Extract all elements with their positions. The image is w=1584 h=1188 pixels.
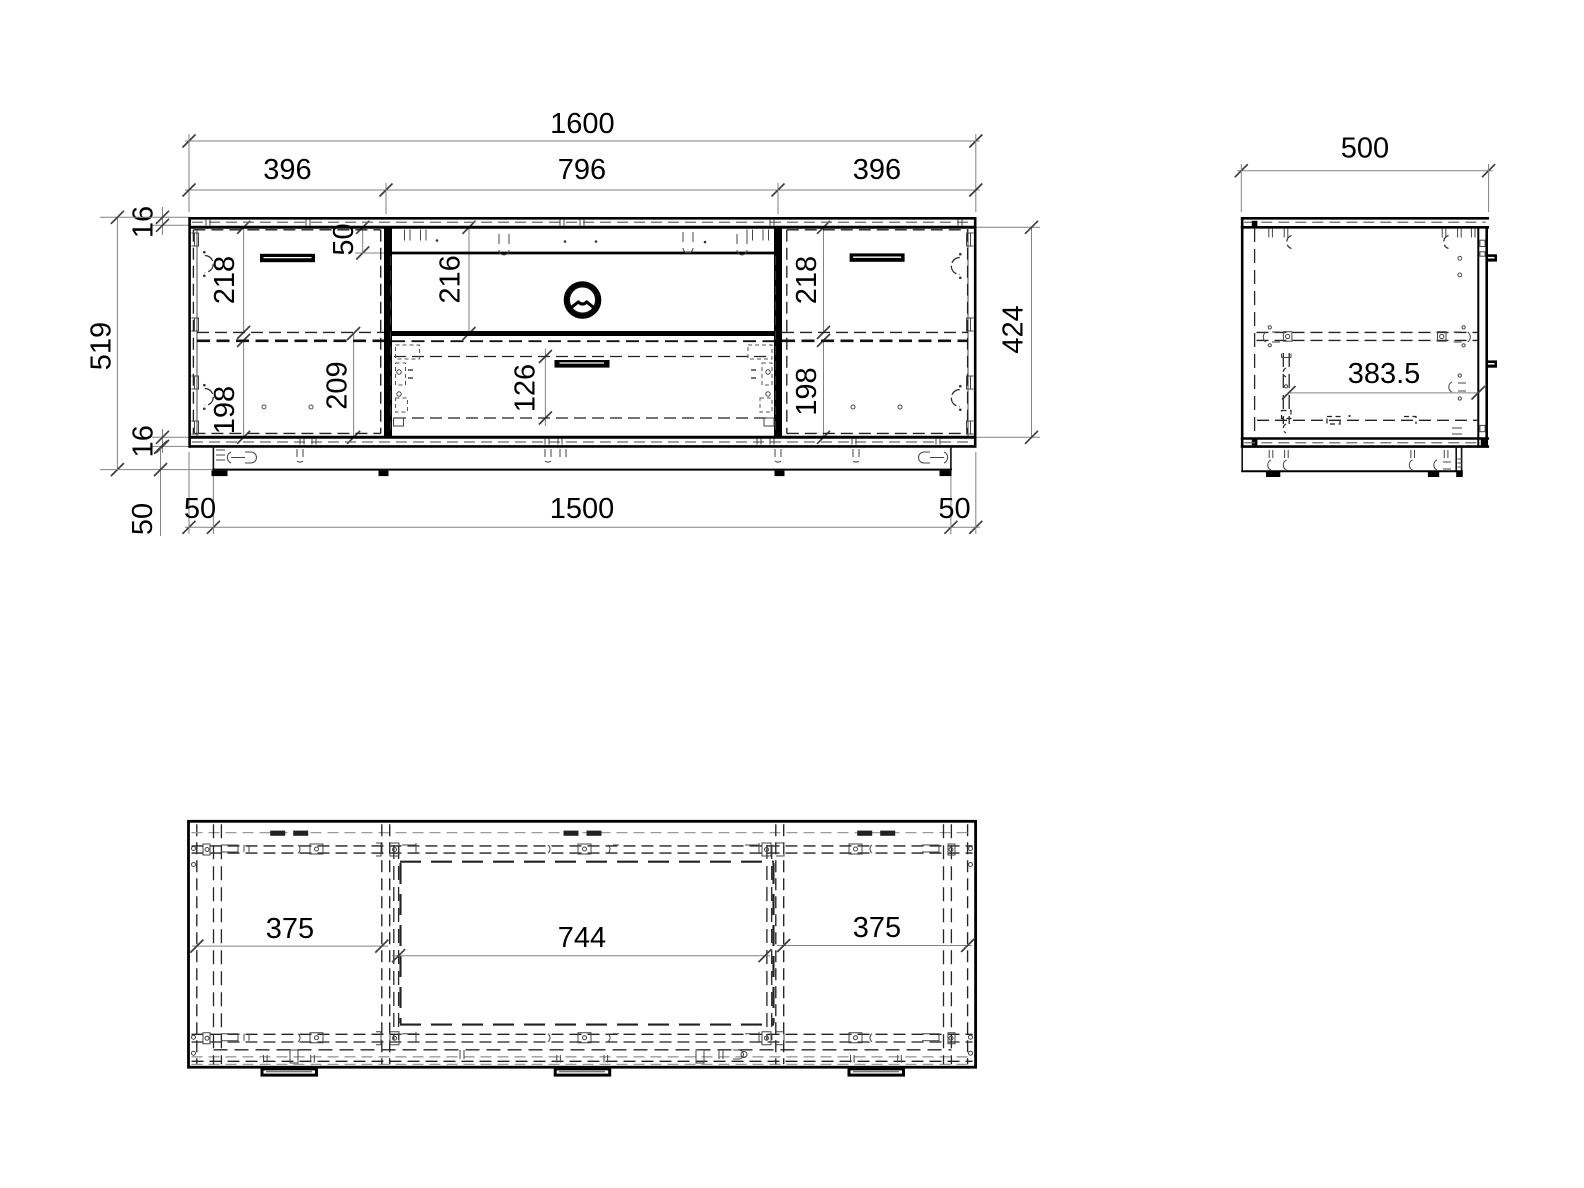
svg-text:209: 209 bbox=[322, 361, 354, 409]
svg-text:198: 198 bbox=[209, 386, 241, 434]
svg-text:16: 16 bbox=[128, 206, 160, 238]
svg-text:50: 50 bbox=[184, 493, 216, 525]
svg-text:500: 500 bbox=[1341, 133, 1389, 165]
svg-text:744: 744 bbox=[558, 922, 606, 954]
svg-text:396: 396 bbox=[263, 154, 311, 186]
svg-text:50: 50 bbox=[938, 493, 970, 525]
svg-text:375: 375 bbox=[853, 912, 901, 944]
svg-text:383.5: 383.5 bbox=[1348, 358, 1421, 390]
svg-text:216: 216 bbox=[435, 255, 467, 303]
svg-text:218: 218 bbox=[791, 256, 823, 304]
svg-text:1600: 1600 bbox=[550, 108, 615, 140]
svg-text:50: 50 bbox=[127, 503, 159, 535]
svg-text:396: 396 bbox=[853, 154, 901, 186]
svg-text:1500: 1500 bbox=[550, 493, 615, 525]
svg-text:519: 519 bbox=[85, 322, 117, 370]
svg-text:796: 796 bbox=[558, 154, 606, 186]
svg-text:198: 198 bbox=[791, 367, 823, 415]
svg-text:218: 218 bbox=[209, 256, 241, 304]
svg-text:375: 375 bbox=[266, 913, 314, 945]
svg-text:424: 424 bbox=[997, 305, 1029, 353]
svg-text:126: 126 bbox=[510, 364, 542, 412]
